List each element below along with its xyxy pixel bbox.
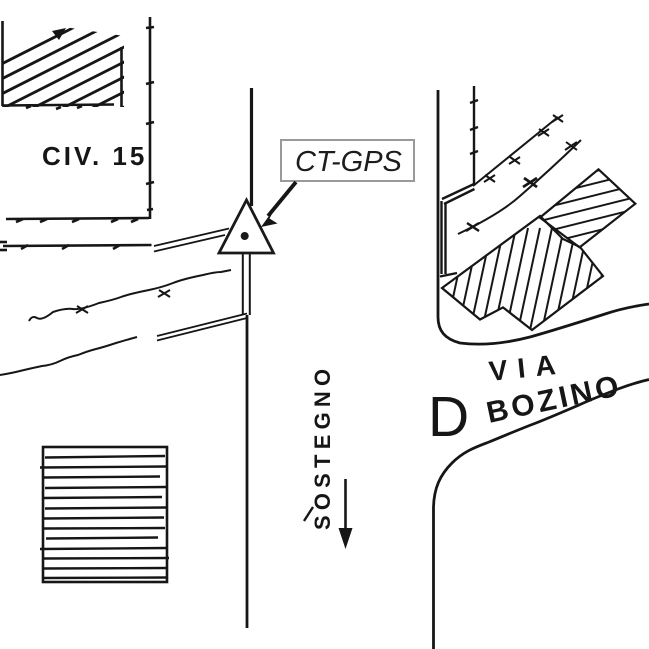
svg-text:CIV. 15: CIV. 15 [42,141,147,171]
svg-text:SOSTEGNO: SOSTEGNO [310,364,335,530]
svg-text:CT-GPS: CT-GPS [295,146,403,178]
svg-text:D: D [428,385,469,449]
svg-text:VIA: VIA [487,348,567,387]
